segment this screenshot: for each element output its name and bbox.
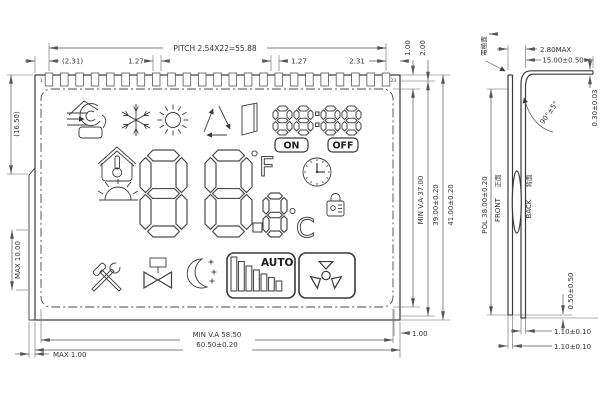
segment	[356, 110, 361, 120]
dim-glass-front: 1.10±0.10	[554, 343, 591, 351]
pin-pad	[152, 73, 160, 86]
electrode-label: 電極面	[479, 36, 488, 56]
level-bar	[254, 270, 260, 291]
segment	[268, 193, 283, 199]
back-label: BACK	[525, 199, 533, 218]
pin-pad	[76, 73, 84, 86]
dim-va-width: MIN V.A 58.50	[193, 331, 242, 339]
pin-pad	[137, 73, 145, 86]
dim-glass-height: 39.00±0.20	[432, 184, 440, 226]
pin-pad	[45, 73, 53, 86]
segment	[140, 158, 151, 193]
pin-pad	[290, 73, 298, 86]
front-label: FRONT	[494, 197, 502, 222]
dim-outer-width: 60.50±0.20	[196, 341, 238, 349]
auto-label: AUTO	[261, 257, 293, 269]
back-label-cn: 背面	[524, 174, 533, 188]
level-bar	[269, 278, 275, 292]
segment	[346, 106, 357, 111]
lcd-datasheet-drawing: 1 23	[0, 0, 600, 400]
dim-tab-width: MAX 1.00	[53, 351, 86, 359]
dim-top-gap: 1.00	[404, 40, 412, 56]
segment	[148, 189, 180, 199]
dim-bend-angle: 90°±5°	[539, 100, 561, 126]
bent-pin	[521, 71, 593, 88]
side-dimensions: 2.80MAX 15.00±0.50 90°±5° 0.30±0.03 POL …	[481, 45, 599, 351]
segment	[356, 122, 361, 132]
segment	[287, 110, 292, 120]
dim-right-gap: 1.00	[412, 330, 428, 338]
pin-pad	[91, 73, 99, 86]
pin-pad	[107, 73, 115, 86]
pin-pad	[260, 73, 268, 86]
dim-pol-offset: 0.50±0.50	[567, 272, 575, 309]
dim-left-height: (16.50)	[13, 111, 21, 137]
segment	[325, 130, 336, 135]
segment	[294, 122, 299, 132]
dim-pin-left: 1.27	[128, 58, 144, 66]
off-label: OFF	[332, 141, 353, 152]
left-tab-edge	[29, 168, 35, 320]
pin-number-first: 1	[40, 78, 43, 84]
segment	[148, 150, 180, 161]
segment	[263, 216, 269, 232]
dim-outer-height: 41.00±0.20	[447, 184, 455, 226]
level-bar	[231, 257, 237, 291]
segment	[176, 195, 187, 230]
dim-left-margin: (2.31)	[62, 58, 83, 66]
segment	[277, 130, 288, 135]
pin-number-last: 23	[391, 78, 397, 84]
level-bar	[276, 281, 282, 291]
segment	[335, 110, 340, 120]
segment	[241, 158, 252, 193]
colon-dot	[316, 123, 320, 127]
segment	[325, 118, 336, 123]
segment	[268, 231, 283, 237]
segment	[321, 122, 326, 132]
segment	[148, 226, 180, 237]
segment	[298, 106, 309, 111]
segment	[281, 216, 287, 232]
dim-va-height: MIN V.A 37.00	[417, 176, 425, 225]
level-bar	[261, 274, 267, 291]
segment	[205, 158, 216, 193]
segment	[294, 110, 299, 120]
segment	[277, 106, 288, 111]
decimal-point	[253, 223, 262, 232]
dim-pin-thickness: 0.30±0.03	[591, 89, 599, 126]
segment	[342, 110, 347, 120]
segment	[277, 118, 288, 123]
dim-pin-length: 15.00±0.50	[542, 57, 584, 65]
pin-pad	[321, 73, 329, 86]
pin-pad	[382, 73, 390, 86]
dim-stack: 2.80MAX	[540, 46, 571, 54]
pin-pad	[168, 73, 176, 86]
segment	[273, 122, 278, 132]
segment	[281, 198, 287, 214]
segment	[241, 195, 252, 230]
pin-pad	[352, 73, 360, 86]
pin-pad	[306, 73, 314, 86]
segment	[346, 118, 357, 123]
pin-pad	[336, 73, 344, 86]
dim-top-gap2: 2.00	[419, 40, 427, 56]
pin-pad	[367, 73, 375, 86]
pin-pad	[214, 73, 222, 86]
segment	[213, 150, 245, 161]
segment	[342, 122, 347, 132]
pin-pad	[61, 73, 69, 86]
pin-pad	[122, 73, 130, 86]
segment	[213, 226, 245, 237]
segment	[273, 110, 278, 120]
dim-pitch: PITCH 2.54X22=55.88	[173, 44, 257, 53]
level-bar	[239, 262, 245, 292]
pin-pad	[244, 73, 252, 86]
on-label: ON	[283, 141, 299, 152]
pin-pad	[198, 73, 206, 86]
pin-pad	[183, 73, 191, 86]
segment	[263, 198, 269, 214]
level-bar	[246, 266, 252, 291]
celsius-label: C	[296, 213, 315, 244]
side-view: 正面 FRONT 背面 BACK 電極面 2.80MAX 15.00±0.50 …	[479, 34, 599, 351]
segment	[298, 118, 309, 123]
segment	[140, 195, 151, 230]
front-label-cn: 正面	[494, 174, 502, 188]
pin-row	[45, 73, 390, 86]
front-view: 1 23	[7, 40, 455, 359]
segment	[346, 130, 357, 135]
segment	[205, 195, 216, 230]
dim-tab-height: MAX 10.00	[14, 241, 22, 279]
segment	[335, 122, 340, 132]
segment	[308, 110, 313, 120]
segment	[321, 110, 326, 120]
segment	[176, 158, 187, 193]
dim-glass-back: 1.10±0.10	[554, 328, 591, 336]
segment	[268, 212, 283, 217]
dim-right-margin: 2.31	[349, 58, 365, 66]
segment	[287, 122, 292, 132]
segment	[308, 122, 313, 132]
dim-pol-height: POL 38.00±0.20	[481, 176, 489, 233]
pin-pad	[275, 73, 283, 86]
segment	[298, 130, 309, 135]
dim-pin-right: 1.27	[291, 58, 307, 66]
segment	[325, 106, 336, 111]
pin-pad	[229, 73, 237, 86]
colon-dot	[316, 112, 320, 116]
lcd-cell	[512, 171, 521, 233]
off-indicator: OFF	[328, 138, 358, 152]
fahrenheit-label: F	[259, 152, 275, 183]
segment	[213, 189, 245, 199]
